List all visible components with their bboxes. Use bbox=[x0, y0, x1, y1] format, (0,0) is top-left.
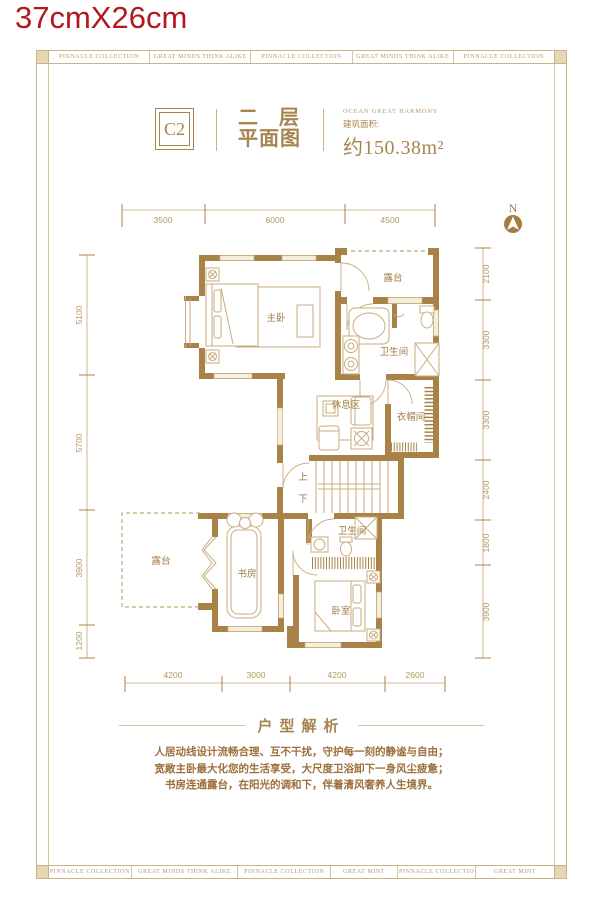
dim-left-2: 5700 bbox=[74, 433, 84, 452]
dim-top-2: 6000 bbox=[266, 215, 285, 225]
north-label: N bbox=[509, 201, 518, 215]
dim-bottom-3: 4200 bbox=[328, 670, 347, 680]
dim-right-1: 2100 bbox=[481, 264, 491, 283]
dim-right-3: 3300 bbox=[481, 410, 491, 429]
room-label-master-bedroom: 主卧 bbox=[266, 312, 286, 324]
dim-right-2: 3300 bbox=[481, 330, 491, 349]
terrace-outlines bbox=[122, 251, 428, 607]
dim-bottom-1: 4200 bbox=[164, 670, 183, 680]
dim-left-1: 5100 bbox=[74, 305, 84, 324]
room-label-study: 书房 bbox=[237, 568, 256, 580]
room-label-bath-top: 卫生间 bbox=[380, 346, 409, 358]
screenshot-root: 37cmX26cm PINNACLE COLLECTION GREAT MIND… bbox=[0, 0, 600, 900]
dim-right-6: 3900 bbox=[481, 602, 491, 621]
room-label-bath-bottom: 卫生间 bbox=[338, 525, 367, 537]
north-arrow-icon: N bbox=[504, 201, 522, 233]
stairs-down-label: 下 bbox=[298, 494, 308, 505]
room-label-cloakroom: 衣帽间 bbox=[397, 411, 426, 423]
room-label-bedroom: 卧室 bbox=[331, 605, 350, 617]
room-label-terrace-top: 露台 bbox=[383, 272, 402, 284]
room-label-terrace-bottom: 露台 bbox=[151, 555, 170, 567]
room-label-lounge: 休息区 bbox=[332, 399, 361, 411]
dim-top-3: 4500 bbox=[381, 215, 400, 225]
dim-top-1: 3500 bbox=[154, 215, 173, 225]
stair-treads bbox=[316, 461, 388, 513]
dim-right-5: 1800 bbox=[481, 533, 491, 552]
dim-bottom-2: 3000 bbox=[247, 670, 266, 680]
stairs-up-label: 上 bbox=[298, 472, 308, 483]
dim-right-4: 2400 bbox=[481, 480, 491, 499]
dim-left-4: 1200 bbox=[74, 631, 84, 650]
floor-plan: 3500 6000 4500 4200 3000 4200 2600 5100 … bbox=[0, 0, 600, 900]
dim-bottom-4: 2600 bbox=[406, 670, 425, 680]
dim-left-3: 3900 bbox=[74, 558, 84, 577]
